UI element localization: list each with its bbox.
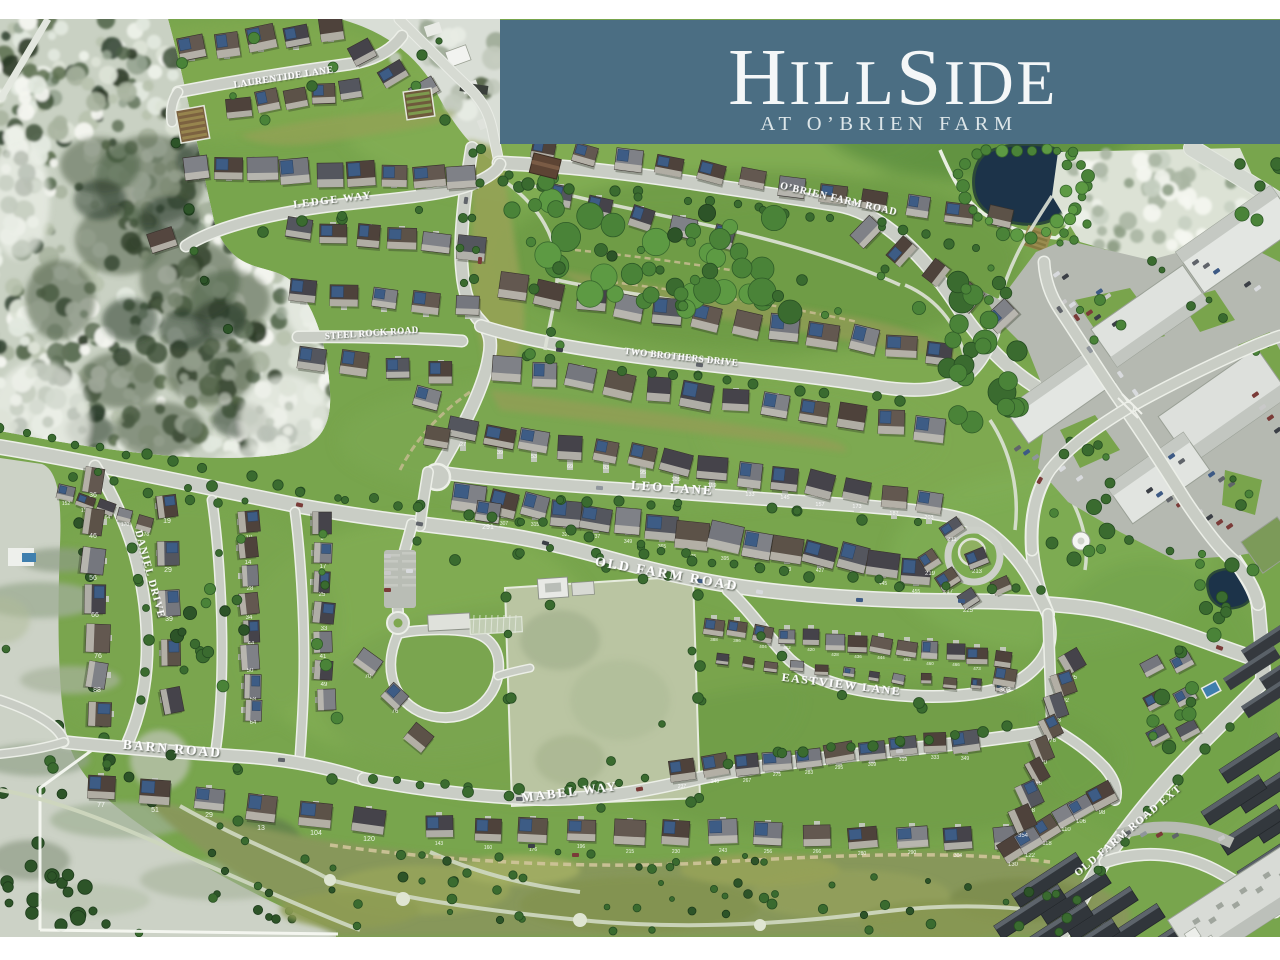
svg-text:280: 280 xyxy=(858,851,867,857)
svg-text:28: 28 xyxy=(247,586,254,592)
svg-text:412: 412 xyxy=(783,645,791,650)
svg-text:56: 56 xyxy=(89,575,97,582)
svg-text:333: 333 xyxy=(931,755,940,761)
svg-text:303: 303 xyxy=(999,687,1011,694)
svg-text:173: 173 xyxy=(852,504,861,510)
svg-text:53: 53 xyxy=(531,454,537,460)
svg-text:122: 122 xyxy=(1025,853,1036,859)
svg-text:304: 304 xyxy=(954,853,963,859)
svg-text:267: 267 xyxy=(743,778,752,784)
svg-text:243: 243 xyxy=(719,848,728,854)
svg-text:213: 213 xyxy=(972,569,983,575)
svg-text:307: 307 xyxy=(500,521,509,527)
svg-text:157: 157 xyxy=(815,502,824,508)
svg-text:143: 143 xyxy=(435,841,444,847)
svg-text:50: 50 xyxy=(247,668,254,674)
svg-text:51: 51 xyxy=(151,807,159,814)
svg-text:436: 436 xyxy=(854,654,862,659)
svg-text:118: 118 xyxy=(1042,841,1052,847)
svg-text:349: 349 xyxy=(961,756,970,762)
svg-text:230: 230 xyxy=(672,849,681,855)
svg-text:187: 187 xyxy=(889,511,898,517)
svg-text:66: 66 xyxy=(91,612,99,619)
svg-text:19: 19 xyxy=(163,518,171,525)
svg-text:29: 29 xyxy=(205,812,213,819)
svg-text:29: 29 xyxy=(164,567,172,574)
svg-text:275: 275 xyxy=(773,772,782,778)
svg-text:349: 349 xyxy=(624,539,633,545)
svg-text:170: 170 xyxy=(121,522,130,528)
svg-text:196: 196 xyxy=(577,844,586,850)
svg-text:39: 39 xyxy=(165,616,173,623)
svg-text:83: 83 xyxy=(603,465,609,471)
svg-text:120: 120 xyxy=(363,836,375,843)
svg-text:388: 388 xyxy=(710,637,718,642)
svg-text:290: 290 xyxy=(908,850,917,856)
svg-text:473: 473 xyxy=(973,666,981,671)
svg-text:295: 295 xyxy=(835,765,844,771)
svg-text:98: 98 xyxy=(1099,810,1106,816)
svg-text:249: 249 xyxy=(711,779,720,785)
svg-text:225: 225 xyxy=(963,608,974,614)
svg-text:283: 283 xyxy=(805,770,814,776)
svg-text:88: 88 xyxy=(93,687,101,694)
svg-text:13: 13 xyxy=(257,825,265,832)
svg-text:46: 46 xyxy=(89,533,97,540)
svg-text:145: 145 xyxy=(780,495,789,501)
svg-text:309: 309 xyxy=(868,762,877,768)
svg-text:237: 237 xyxy=(678,784,687,790)
svg-text:203: 203 xyxy=(924,515,933,521)
svg-text:256: 256 xyxy=(764,849,773,855)
svg-text:460: 460 xyxy=(926,661,934,666)
svg-text:291: 291 xyxy=(482,524,494,531)
svg-text:49: 49 xyxy=(321,682,328,688)
svg-text:25: 25 xyxy=(319,592,326,598)
svg-text:76: 76 xyxy=(94,653,102,660)
svg-text:70: 70 xyxy=(365,674,372,680)
svg-text:466: 466 xyxy=(952,662,960,667)
svg-text:64: 64 xyxy=(250,720,257,726)
svg-text:395: 395 xyxy=(721,556,730,562)
svg-text:133: 133 xyxy=(745,492,754,498)
svg-text:420: 420 xyxy=(807,647,815,652)
svg-text:77: 77 xyxy=(97,802,105,809)
svg-text:130: 130 xyxy=(1008,862,1019,868)
svg-text:AT O’BRIEN FARM: AT O’BRIEN FARM xyxy=(760,113,1017,135)
svg-text:455: 455 xyxy=(912,589,921,595)
svg-text:27: 27 xyxy=(460,442,466,448)
svg-text:315: 315 xyxy=(531,522,540,528)
svg-text:219: 219 xyxy=(925,571,936,577)
svg-text:452: 452 xyxy=(903,657,911,662)
svg-text:215: 215 xyxy=(626,849,635,855)
svg-text:427: 427 xyxy=(816,568,825,574)
svg-text:319: 319 xyxy=(899,757,908,763)
svg-text:110: 110 xyxy=(1061,827,1071,833)
svg-text:76: 76 xyxy=(392,709,399,715)
svg-text:428: 428 xyxy=(831,652,839,657)
svg-text:354: 354 xyxy=(1018,833,1029,839)
svg-text:104: 104 xyxy=(310,830,322,837)
svg-text:69: 69 xyxy=(567,464,573,470)
svg-text:404: 404 xyxy=(759,644,767,649)
svg-text:160: 160 xyxy=(484,845,493,851)
svg-text:444: 444 xyxy=(877,655,885,660)
svg-text:396: 396 xyxy=(733,638,741,643)
svg-text:211: 211 xyxy=(947,537,957,543)
svg-text:152: 152 xyxy=(62,501,71,507)
svg-text:266: 266 xyxy=(813,849,822,855)
svg-text:95: 95 xyxy=(640,470,646,476)
svg-text:36: 36 xyxy=(89,492,97,499)
svg-text:39: 39 xyxy=(497,450,503,456)
svg-text:106: 106 xyxy=(1076,819,1087,825)
